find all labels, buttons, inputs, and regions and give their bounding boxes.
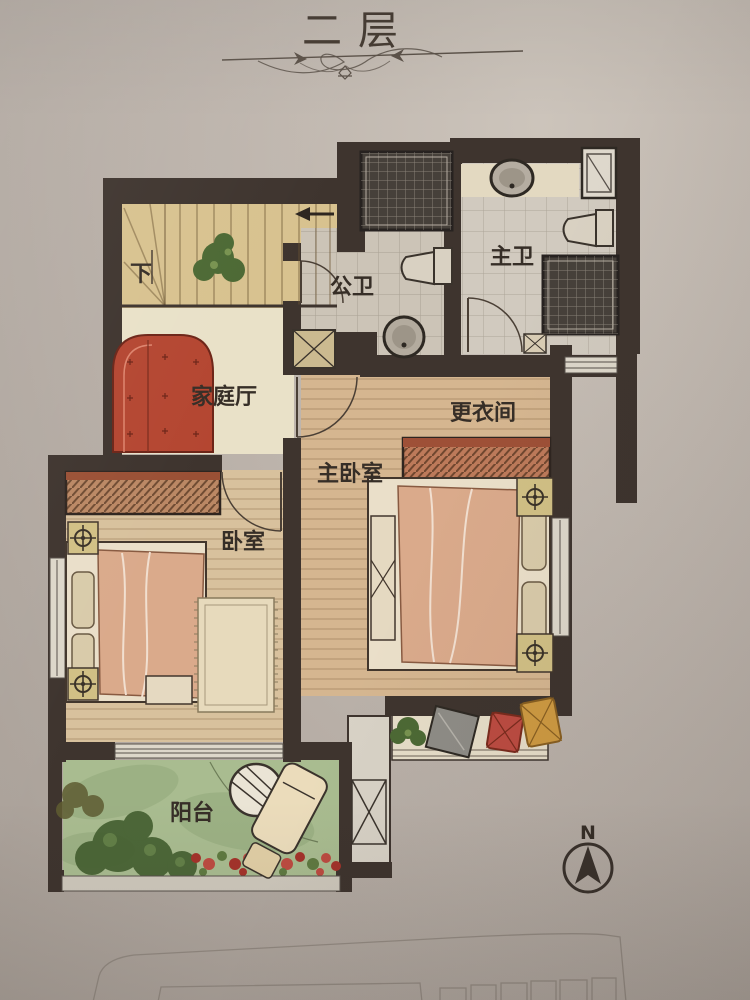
label-master-bathroom: 主卫 <box>490 245 534 270</box>
label-balcony: 阳台 <box>170 800 214 826</box>
bed-bench <box>146 676 192 704</box>
pillow <box>72 572 94 628</box>
cabinet-x-box <box>293 330 335 368</box>
yellow-pillow <box>520 698 562 748</box>
small-x-box <box>524 334 546 353</box>
balcony-sliding-door <box>115 744 283 758</box>
label-public-bathroom: 公卫 <box>330 275 374 300</box>
page-title: 二层 <box>302 8 414 54</box>
tablet <box>426 706 479 757</box>
round-sink <box>384 317 424 357</box>
oval-sink <box>491 160 533 196</box>
label-family-hall: 家庭厅 <box>191 384 257 410</box>
label-master-bedroom: 主卧室 <box>317 461 383 487</box>
north-compass: N <box>564 822 612 892</box>
red-pillow <box>486 712 523 753</box>
master-bedroom-furniture <box>368 478 553 672</box>
wardrobe <box>66 472 220 514</box>
photographed-floorplan-page: 二层 <box>0 0 750 1000</box>
bed-bench <box>371 516 395 640</box>
rug <box>194 598 278 712</box>
bath-window <box>565 357 617 373</box>
clothes-rack <box>403 438 550 480</box>
site-key-plan-outline <box>93 934 626 1000</box>
north-arrow-icon <box>575 846 601 884</box>
title-block: 二层 <box>222 8 523 79</box>
label-dressing-room: 更衣间 <box>450 400 516 426</box>
north-label: N <box>580 822 596 844</box>
second-floor-plan: 二层 <box>0 0 750 1000</box>
ac-platform <box>348 716 390 864</box>
label-bedroom: 卧室 <box>221 529 265 555</box>
shower-stall <box>582 148 616 198</box>
balcony-rail <box>62 876 340 891</box>
bed-blanket <box>398 486 520 666</box>
label-stairs-down: 下 <box>130 262 152 287</box>
